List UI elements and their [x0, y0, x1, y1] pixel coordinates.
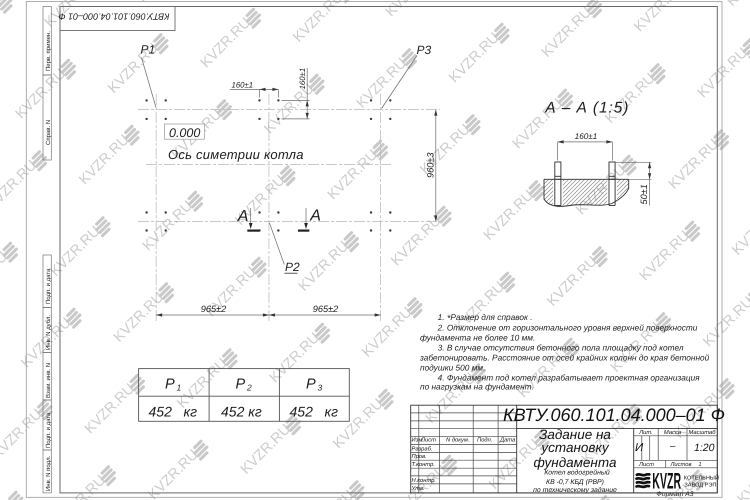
svg-text:965±2: 965±2 [313, 304, 338, 314]
svg-text:Листов: Листов [669, 462, 691, 468]
svg-text:Инв. N дубл.: Инв. N дубл. [45, 315, 52, 350]
svg-text:установку: установку [540, 440, 609, 455]
svg-text:подушки 500 мм.: подушки 500 мм. [420, 363, 485, 373]
svg-text:–: – [670, 441, 676, 452]
svg-text:N докум.: N докум. [446, 437, 469, 444]
svg-text:Подп. и дата: Подп. и дата [45, 268, 52, 304]
svg-text:KVZR: KVZR [652, 468, 681, 493]
svg-text:Масштаб: Масштаб [688, 429, 716, 436]
svg-text:160±1: 160±1 [575, 132, 598, 141]
svg-text:452 кг: 452 кг [221, 404, 262, 420]
svg-text:А: А [237, 208, 249, 225]
svg-text:ЗАВОД РЭП: ЗАВОД РЭП [684, 482, 716, 488]
svg-text:Разраб.: Разраб. [412, 445, 433, 452]
svg-text:160±1: 160±1 [232, 81, 254, 90]
svg-text:Т.контр.: Т.контр. [412, 462, 435, 468]
svg-text:Котел водогрейный: Котел водогрейный [544, 469, 610, 477]
svg-text:Формат А3: Формат А3 [656, 491, 693, 498]
svg-text:И: И [635, 442, 644, 454]
svg-text:Утв.: Утв. [411, 486, 425, 492]
svg-text:P: P [165, 377, 175, 393]
svg-text:Перв. примен.: Перв. примен. [45, 31, 52, 71]
svg-text:P: P [236, 377, 246, 393]
svg-text:452 кг: 452 кг [290, 404, 339, 420]
svg-text:фундамента не более 10 мм.: фундамента не более 10 мм. [420, 333, 535, 343]
svg-text:А: А [309, 207, 321, 224]
svg-text:Пров.: Пров. [412, 454, 427, 460]
svg-text:КВТУ.060.101.04.000–01 Ф: КВТУ.060.101.04.000–01 Ф [59, 12, 170, 22]
svg-text:50±1: 50±1 [639, 184, 649, 204]
svg-text:Подп. и дата: Подп. и дата [45, 412, 52, 448]
svg-text:КВ -0,7 КБД (РВР): КВ -0,7 КБД (РВР) [546, 479, 604, 486]
svg-text:фундамента: фундамента [534, 455, 617, 470]
svg-text:Взам. инв. N: Взам. инв. N [45, 363, 52, 398]
svg-text:Инв. N подл.: Инв. N подл. [45, 455, 52, 491]
svg-text:0.000: 0.000 [169, 126, 200, 140]
svg-text:Лист: Лист [420, 438, 436, 444]
svg-text:Лист: Лист [638, 462, 654, 468]
svg-text:160±1: 160±1 [298, 68, 307, 90]
svg-text:КВТУ.060.101.04.000–01 Ф: КВТУ.060.101.04.000–01 Ф [503, 405, 725, 425]
svg-text:960±3: 960±3 [425, 152, 435, 178]
svg-text:Подп.: Подп. [477, 437, 492, 444]
svg-text:965±2: 965±2 [201, 304, 226, 314]
svg-text:Масса: Масса [664, 430, 682, 436]
svg-text:1: 1 [177, 383, 182, 393]
svg-text:P1: P1 [141, 43, 156, 57]
svg-text:Справ. N: Справ. N [45, 120, 52, 145]
svg-text:3: 3 [318, 383, 323, 393]
svg-text:452 кг: 452 кг [149, 404, 198, 420]
svg-text:3. В случае отсутствия бетонно: 3. В случае отсутствия бетонного пола пл… [438, 343, 684, 353]
svg-text:Н.контр.: Н.контр. [412, 478, 437, 484]
svg-text:P3: P3 [417, 43, 432, 57]
svg-text:1. *Размер для справок .: 1. *Размер для справок . [438, 312, 533, 323]
svg-text:2: 2 [246, 383, 252, 393]
svg-text:по нагрузкам на фундамент.: по нагрузкам на фундамент. [420, 382, 534, 392]
svg-text:2. Отклонение от горизонтально: 2. Отклонение от горизонтального уровня … [437, 322, 698, 332]
svg-text:КОТЕЛЬНЫЙ: КОТЕЛЬНЫЙ [684, 473, 719, 481]
svg-text:P: P [306, 377, 316, 393]
svg-text:1: 1 [698, 462, 701, 468]
svg-text:1:20: 1:20 [694, 442, 715, 454]
svg-text:забетонировать. Расстояние от: забетонировать. Расстояние от осей крайн… [419, 353, 710, 363]
svg-text:Дата: Дата [499, 438, 516, 444]
svg-text:P2: P2 [285, 260, 300, 274]
svg-text:по техническому задание: по техническому задание [533, 487, 617, 494]
svg-text:Ось симетрии котла: Ось симетрии котла [168, 147, 304, 162]
svg-text:Лит.: Лит. [638, 430, 653, 436]
svg-text:А – А (1:5): А – А (1:5) [544, 99, 629, 116]
